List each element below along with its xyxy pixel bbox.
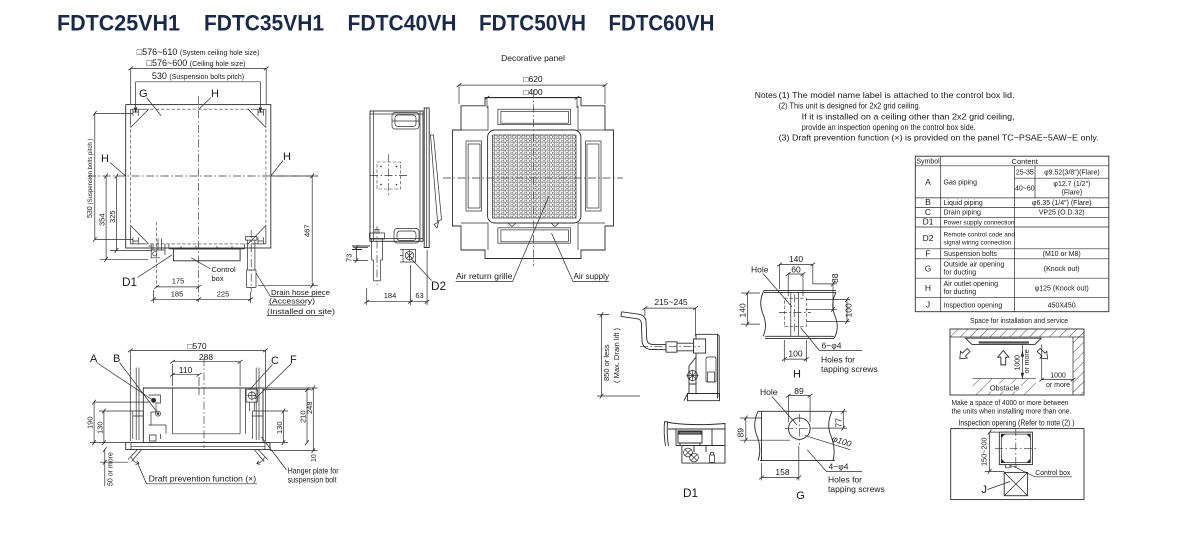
svg-text:6−φ4: 6−φ4 xyxy=(822,341,842,351)
svg-text:φ6.35 (1/4″) (Flare): φ6.35 (1/4″) (Flare) xyxy=(1032,200,1092,207)
svg-text:Inspection opening (Refer to n: Inspection opening (Refer to note (2) ) xyxy=(959,419,1075,428)
svg-text:(Installed on site): (Installed on site) xyxy=(267,307,336,316)
svg-text:Control: Control xyxy=(212,265,237,274)
svg-text:tapping screws: tapping screws xyxy=(828,484,885,494)
svg-text:89: 89 xyxy=(736,428,746,438)
svg-text:D2: D2 xyxy=(431,279,446,293)
svg-text:G: G xyxy=(139,88,148,100)
svg-text:□570: □570 xyxy=(187,341,207,351)
svg-text:B: B xyxy=(925,197,931,207)
svg-text:Decorative panel: Decorative panel xyxy=(501,53,565,63)
svg-text:10: 10 xyxy=(311,454,318,462)
svg-text:B: B xyxy=(113,353,120,365)
svg-text:H: H xyxy=(211,88,219,100)
svg-text:H: H xyxy=(793,369,801,381)
svg-text:G: G xyxy=(925,264,932,274)
svg-text:□620: □620 xyxy=(523,74,543,84)
svg-text:for ducting: for ducting xyxy=(944,270,977,277)
svg-text:40~60: 40~60 xyxy=(1015,186,1035,193)
svg-text:If it is installed on a ceilin: If it is installed on a ceiling other th… xyxy=(802,111,1015,121)
svg-text:D1: D1 xyxy=(122,275,137,289)
svg-text:130: 130 xyxy=(275,421,284,434)
svg-text:Content: Content xyxy=(1012,157,1039,166)
svg-text:60: 60 xyxy=(791,265,801,275)
svg-text:Draft prevention function (×): Draft prevention function (×) xyxy=(149,474,257,484)
svg-text:215~245: 215~245 xyxy=(654,297,688,307)
svg-text:158: 158 xyxy=(775,467,789,477)
svg-text:Air outlet opening: Air outlet opening xyxy=(944,281,999,288)
svg-text:(Flare): (Flare) xyxy=(1062,190,1083,197)
svg-text:150~200: 150~200 xyxy=(980,437,989,466)
svg-text:F: F xyxy=(925,249,930,259)
svg-text:Space for installation and ser: Space for installation and service xyxy=(970,316,1068,325)
svg-text:A: A xyxy=(90,353,98,365)
svg-text:Hole: Hole xyxy=(760,387,778,397)
svg-text:325: 325 xyxy=(108,210,117,223)
svg-text:Holes for: Holes for xyxy=(821,355,855,365)
svg-text:467: 467 xyxy=(303,224,312,237)
svg-text:Symbol: Symbol xyxy=(916,159,940,166)
svg-text:Drain piping: Drain piping xyxy=(944,210,981,217)
svg-text:225: 225 xyxy=(217,290,230,299)
svg-text:(Accessory): (Accessory) xyxy=(269,297,316,306)
svg-text:Air return grille: Air return grille xyxy=(456,272,513,281)
svg-text:suspension bolt: suspension bolt xyxy=(288,475,338,485)
svg-text:Liquid piping: Liquid piping xyxy=(944,200,983,207)
svg-text:for ducting: for ducting xyxy=(944,289,977,296)
svg-text:(M10 or M8): (M10 or M8) xyxy=(1043,251,1081,258)
svg-text:D1: D1 xyxy=(923,217,934,227)
svg-text:box: box xyxy=(212,274,224,283)
svg-text:Holes for: Holes for xyxy=(828,475,862,485)
svg-text:248: 248 xyxy=(305,401,314,414)
svg-text:signal wiring connection: signal wiring connection xyxy=(944,240,1012,247)
svg-text:FDTC40VH: FDTC40VH xyxy=(348,11,457,36)
svg-text:H: H xyxy=(283,151,291,163)
svg-text:Suspension bolts: Suspension bolts xyxy=(944,251,998,258)
svg-text:FDTC25VH1: FDTC25VH1 xyxy=(57,11,180,36)
svg-text:D1: D1 xyxy=(683,486,698,500)
svg-text:(1) The model name label is at: (1) The model name label is attached to … xyxy=(779,90,1015,100)
svg-text:450X450: 450X450 xyxy=(1048,303,1076,310)
svg-text:130: 130 xyxy=(95,421,104,434)
svg-text:184: 184 xyxy=(384,291,397,300)
svg-text:1000: 1000 xyxy=(1050,373,1066,380)
svg-text:Obstacle: Obstacle xyxy=(990,384,1020,393)
svg-text:63: 63 xyxy=(415,291,423,300)
svg-text:(2) This unit is designed for: (2) This unit is designed for 2x2 grid c… xyxy=(779,101,921,111)
svg-text:Hole: Hole xyxy=(751,265,769,275)
svg-text:tapping screws: tapping screws xyxy=(821,364,878,374)
svg-text:(3) Draft prevention function: (3) Draft prevention function (×) is pro… xyxy=(779,132,1099,142)
svg-text:FDTC50VH: FDTC50VH xyxy=(479,11,586,36)
svg-text:J: J xyxy=(926,300,930,310)
svg-text:VP25 (O.D.32): VP25 (O.D.32) xyxy=(1039,210,1085,217)
svg-text:530 (Suspension bolts pitch ): 530 (Suspension bolts pitch ) xyxy=(87,139,94,218)
svg-text:or more: or more xyxy=(1024,349,1031,373)
svg-text:354: 354 xyxy=(98,213,107,226)
svg-text:850 or less: 850 or less xyxy=(602,344,611,381)
svg-text:185: 185 xyxy=(171,290,184,299)
svg-text:50 or more: 50 or more xyxy=(108,452,115,486)
svg-text:FDTC60VH: FDTC60VH xyxy=(609,11,715,36)
svg-text:1000: 1000 xyxy=(1015,355,1022,371)
svg-text:D2: D2 xyxy=(923,233,934,243)
svg-text:H: H xyxy=(101,153,109,165)
svg-text:100: 100 xyxy=(788,349,802,359)
svg-text:□400: □400 xyxy=(523,87,543,97)
svg-text:( Max. Drain lift ): ( Max. Drain lift ) xyxy=(612,327,621,383)
svg-text:Air supply: Air supply xyxy=(574,272,610,281)
svg-text:FDTC35VH1: FDTC35VH1 xyxy=(204,11,324,36)
svg-text:110: 110 xyxy=(179,365,193,375)
svg-text:Inspection opening: Inspection opening xyxy=(944,303,1003,310)
svg-text:140: 140 xyxy=(789,254,803,264)
svg-text:4−φ4: 4−φ4 xyxy=(829,462,849,472)
svg-text:Notes: Notes xyxy=(755,90,777,100)
svg-text:Remote control code and: Remote control code and xyxy=(944,232,1016,239)
svg-text:φ12.7 (1/2″): φ12.7 (1/2″) xyxy=(1053,181,1090,188)
svg-text:(Knock out): (Knock out) xyxy=(1044,266,1080,273)
svg-text:175: 175 xyxy=(172,277,185,286)
svg-text:25-35: 25-35 xyxy=(1016,170,1034,177)
svg-text:Outside air opening: Outside air opening xyxy=(944,262,1005,269)
svg-text:89: 89 xyxy=(794,386,804,396)
svg-text:φ9.52(3/8″)(Flare): φ9.52(3/8″)(Flare) xyxy=(1044,170,1100,177)
svg-text:or more: or more xyxy=(1046,382,1070,389)
svg-text:Control box: Control box xyxy=(1035,468,1070,477)
svg-text:190: 190 xyxy=(86,416,95,429)
svg-text:140: 140 xyxy=(738,303,748,317)
svg-text:G: G xyxy=(796,490,805,502)
svg-text:Gas piping: Gas piping xyxy=(944,180,978,187)
svg-text:73: 73 xyxy=(345,254,354,262)
svg-text:J: J xyxy=(982,484,988,496)
svg-text:φ125 (Knock out): φ125 (Knock out) xyxy=(1035,286,1089,293)
svg-text:the units when installing more: the units when installing more than one. xyxy=(952,407,1072,416)
svg-text:H: H xyxy=(925,283,931,293)
svg-text:provide an inspection opening: provide an inspection opening on the con… xyxy=(802,122,976,132)
svg-text:Power supply connection: Power supply connection xyxy=(944,219,1015,226)
svg-text:88: 88 xyxy=(830,273,840,283)
svg-text:A: A xyxy=(925,177,931,187)
svg-text:288: 288 xyxy=(199,352,213,362)
svg-text:100: 100 xyxy=(844,303,854,317)
svg-text:C: C xyxy=(925,207,931,217)
svg-text:77: 77 xyxy=(834,418,844,428)
